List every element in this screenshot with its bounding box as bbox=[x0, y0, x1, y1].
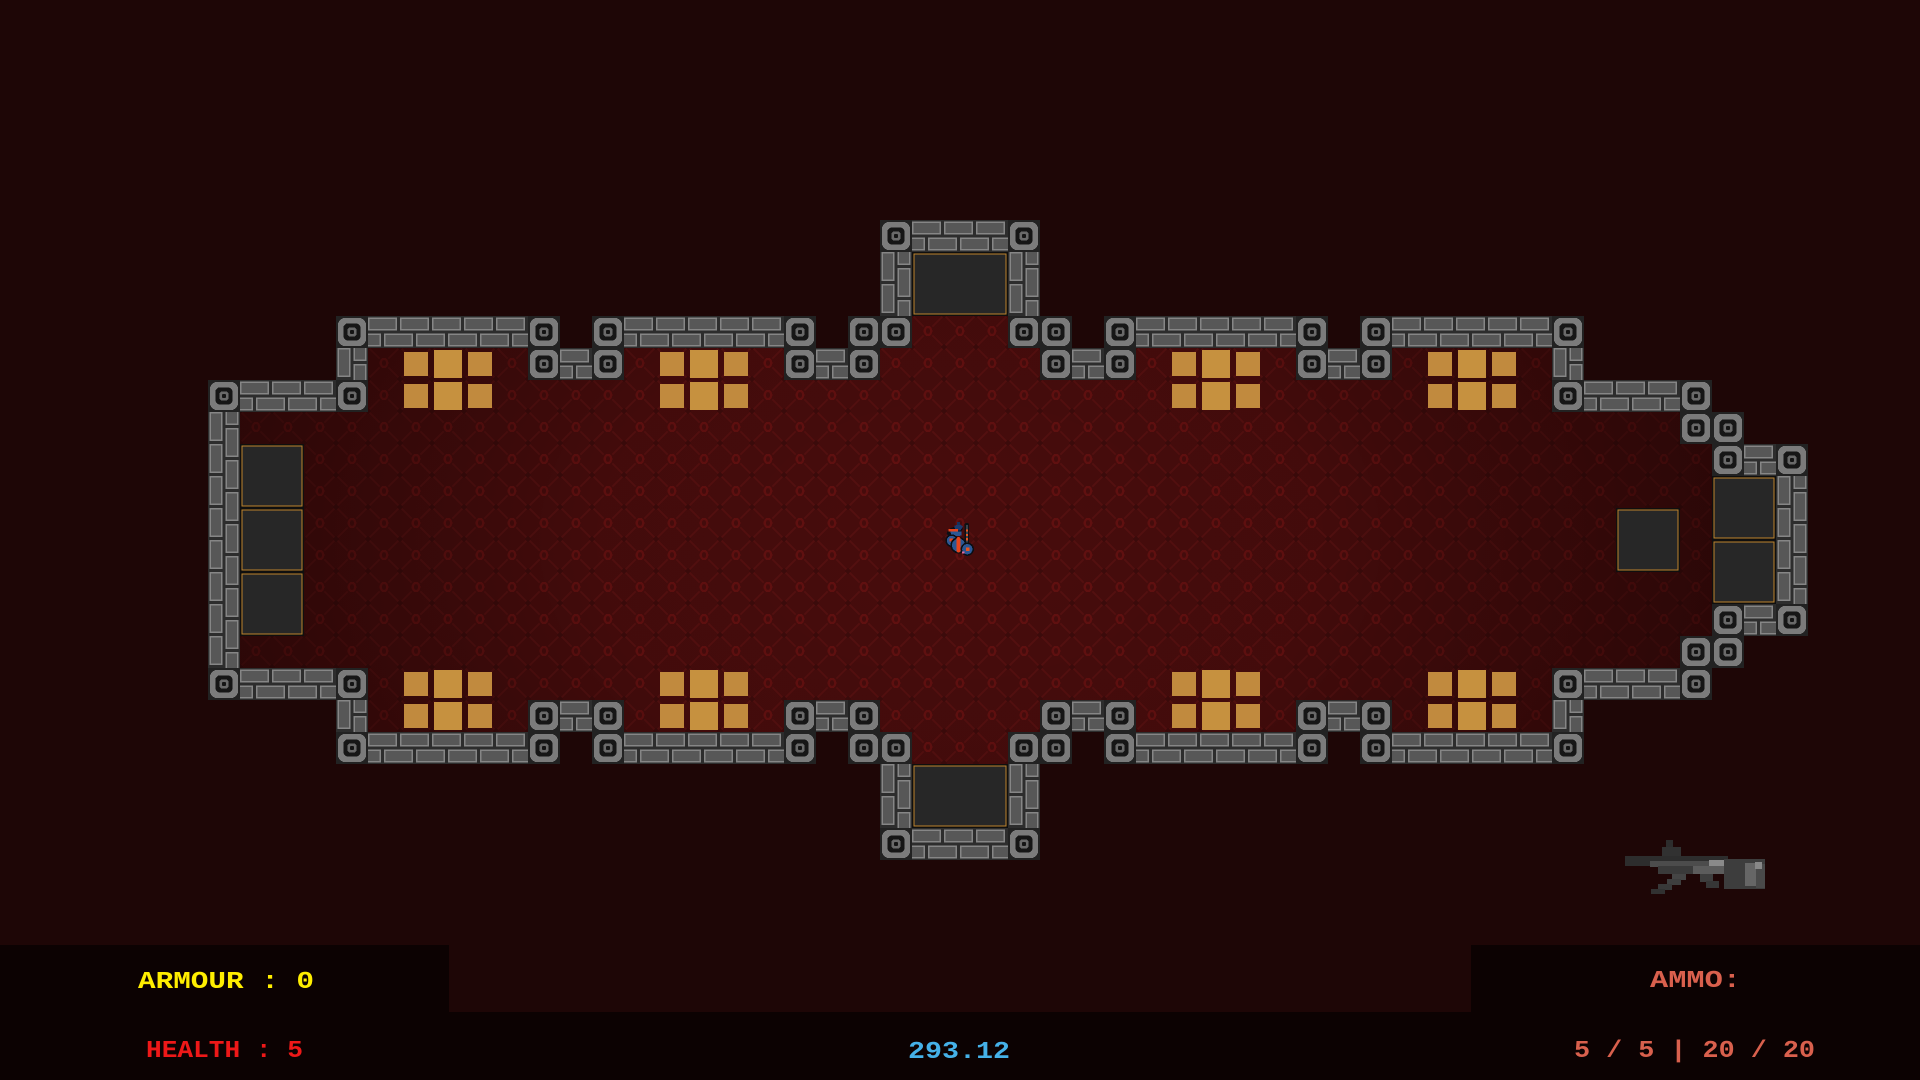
svg-text:AMMO:: AMMO: bbox=[1650, 968, 1741, 995]
svg-text:293.12: 293.12 bbox=[908, 1039, 1010, 1066]
svg-text:ARMOUR : 0: ARMOUR : 0 bbox=[138, 969, 314, 996]
svg-text:5 / 5 | 20 / 20: 5 / 5 | 20 / 20 bbox=[1574, 1038, 1815, 1065]
svg-text:HEALTH : 5: HEALTH : 5 bbox=[146, 1038, 303, 1065]
